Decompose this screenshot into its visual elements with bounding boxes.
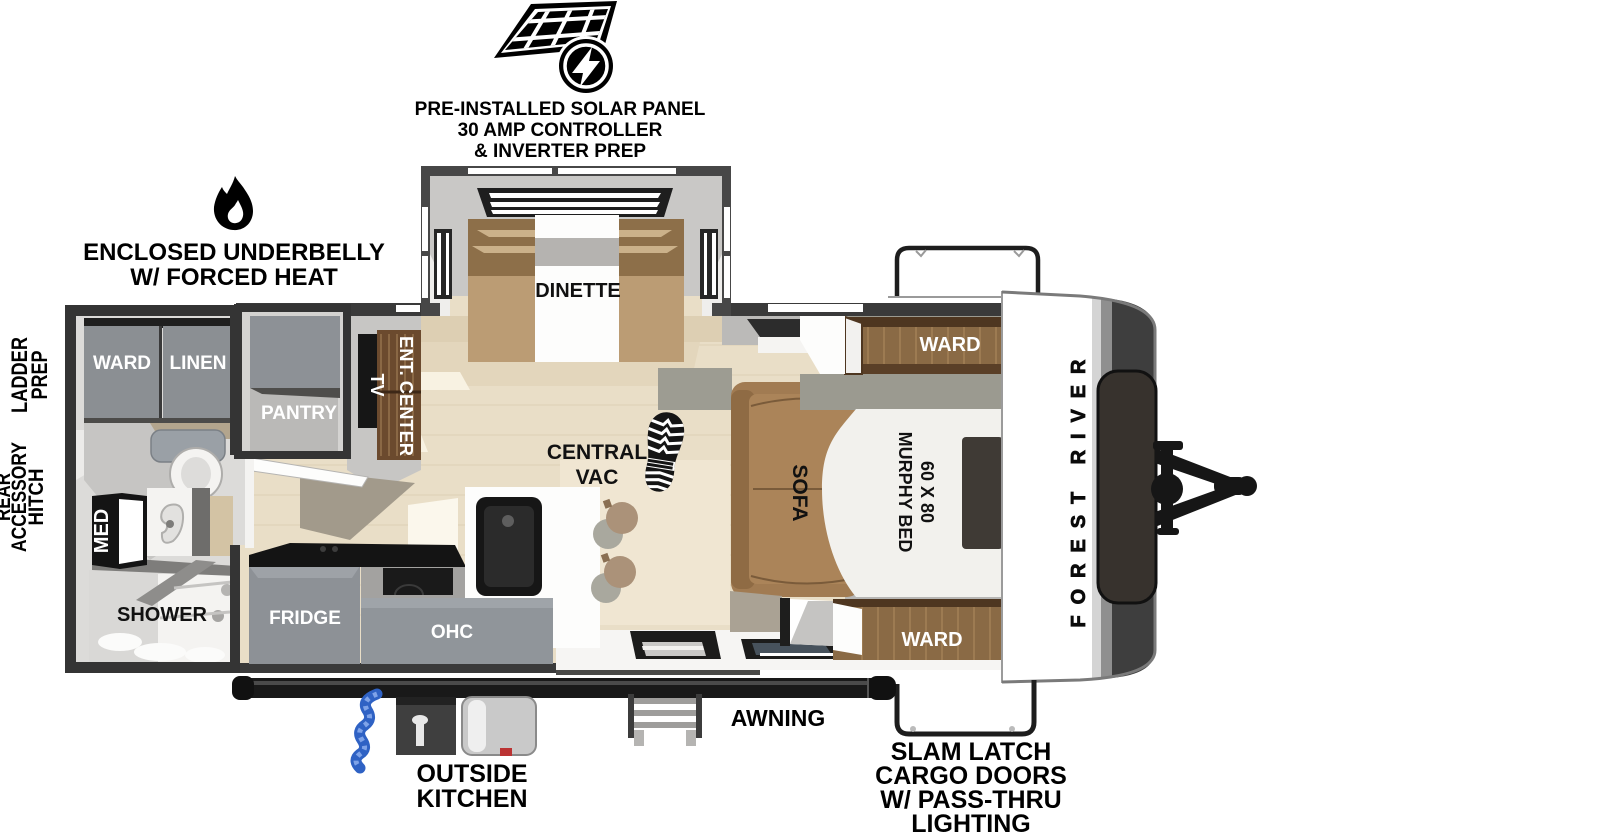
- svg-text:30 AMP CONTROLLER: 30 AMP CONTROLLER: [458, 120, 663, 141]
- svg-text:VAC: VAC: [576, 466, 619, 489]
- svg-text:60 X 80: 60 X 80: [917, 461, 937, 523]
- svg-text:PRE-INSTALLED SOLAR PANEL: PRE-INSTALLED SOLAR PANEL: [415, 99, 706, 120]
- svg-text:KITCHEN: KITCHEN: [416, 785, 527, 813]
- svg-text:CENTRAL: CENTRAL: [547, 441, 647, 464]
- svg-text:AWNING: AWNING: [731, 705, 826, 731]
- svg-text:DINETTE: DINETTE: [535, 280, 621, 302]
- svg-text:TV: TV: [367, 373, 387, 396]
- svg-text:SOFA: SOFA: [788, 464, 811, 521]
- svg-text:WARD: WARD: [901, 629, 962, 651]
- svg-text:LIGHTING: LIGHTING: [911, 810, 1030, 835]
- svg-text:ENCLOSED UNDERBELLY: ENCLOSED UNDERBELLY: [83, 239, 385, 266]
- svg-text:PANTRY: PANTRY: [261, 403, 337, 424]
- svg-text:OHC: OHC: [431, 622, 474, 643]
- svg-text:HITCH: HITCH: [25, 469, 48, 526]
- svg-text:W/ FORCED HEAT: W/ FORCED HEAT: [130, 264, 338, 291]
- svg-text:FRIDGE: FRIDGE: [269, 608, 341, 629]
- svg-text:MURPHY BED: MURPHY BED: [895, 432, 915, 553]
- svg-text:WARD: WARD: [919, 334, 980, 356]
- svg-text:FOREST RIVER: FOREST RIVER: [1068, 351, 1090, 628]
- svg-text:MED: MED: [91, 509, 113, 553]
- svg-text:SHOWER: SHOWER: [117, 604, 208, 626]
- svg-text:OUTSIDE: OUTSIDE: [416, 760, 527, 788]
- svg-text:ENT. CENTER: ENT. CENTER: [396, 336, 416, 456]
- svg-text:WARD: WARD: [93, 353, 151, 374]
- svg-text:& INVERTER PREP: & INVERTER PREP: [474, 141, 646, 162]
- svg-text:LINEN: LINEN: [170, 353, 227, 374]
- svg-text:PREP: PREP: [27, 351, 52, 400]
